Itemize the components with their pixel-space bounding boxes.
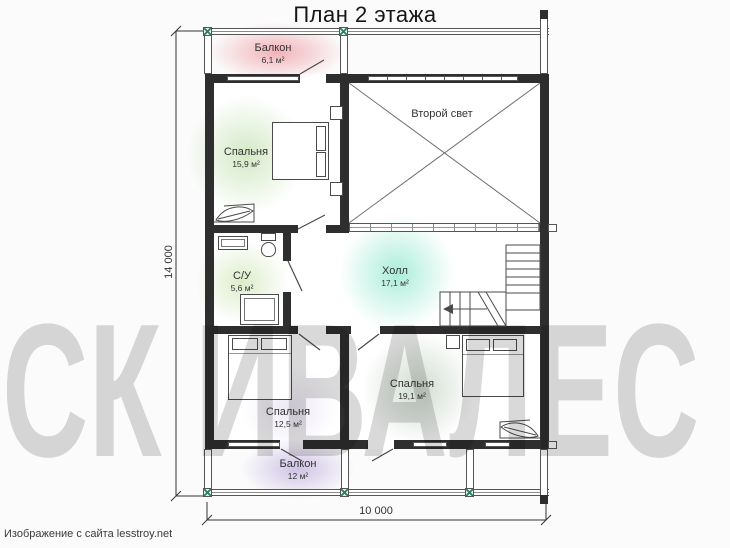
balcony-post xyxy=(341,449,349,489)
bed-fold-line xyxy=(463,354,523,355)
joint-marker xyxy=(203,488,212,497)
room-name: Второй свет xyxy=(410,108,474,121)
sink xyxy=(218,236,248,250)
shower-tray xyxy=(240,294,279,325)
room-area: 6,1 м² xyxy=(233,55,313,65)
pillow xyxy=(261,338,287,350)
window xyxy=(413,442,447,447)
nightstand xyxy=(330,106,343,120)
balcony-post xyxy=(340,35,348,74)
room-area: 12 м² xyxy=(258,471,338,481)
wall-bathroom-right-a xyxy=(283,233,291,261)
window-sill xyxy=(548,441,557,449)
wall-bedrooms-divider xyxy=(340,326,349,449)
pillow xyxy=(232,338,258,350)
wall-hall-bedrooms-a xyxy=(205,326,298,334)
room-name: Спальня xyxy=(370,378,454,391)
room-label-balcony-bottom: Балкон 12 м² xyxy=(258,458,338,481)
joint-marker xyxy=(339,27,348,36)
room-name: Балкон xyxy=(258,458,338,471)
room-name: Спальня xyxy=(248,406,328,419)
wall-hall-bedrooms-c xyxy=(380,326,549,334)
toilet-tank xyxy=(261,233,276,241)
toilet-bowl xyxy=(261,242,276,257)
room-label-bathroom: С/У 5,6 м² xyxy=(212,270,272,293)
balcony-post xyxy=(204,449,212,489)
nightstand xyxy=(446,335,460,349)
door-leaf xyxy=(372,449,393,461)
bed-fold-line xyxy=(229,353,291,354)
joint-marker xyxy=(340,488,349,497)
balcony-post xyxy=(540,449,548,496)
page-title: План 2 этажа xyxy=(0,2,730,28)
joint-marker xyxy=(203,27,212,36)
room-label-bedroom-right: Спальня 19,1 м² xyxy=(370,378,454,401)
dimension-label-horizontal: 10 000 xyxy=(346,505,406,517)
wall-right xyxy=(540,74,549,449)
window xyxy=(227,76,299,81)
room-area: 5,6 м² xyxy=(212,283,272,293)
post-cap xyxy=(540,495,548,504)
room-label-hall: Холл 17,1 м² xyxy=(355,265,435,288)
window-sill xyxy=(548,224,557,232)
wall-bedroom-hall-a xyxy=(205,225,298,233)
attribution-text: Изображение с сайта lesstroy.net xyxy=(4,528,172,540)
floor-plan-page: { "title": "План 2 этажа", "watermark": … xyxy=(0,0,730,548)
window xyxy=(368,76,518,81)
room-label-bedroom-top: Спальня 15,9 м² xyxy=(206,146,286,169)
room-area: 17,1 м² xyxy=(355,278,435,288)
balcony-post xyxy=(466,449,474,489)
pillow xyxy=(493,339,517,351)
room-area: 12,5 м² xyxy=(248,419,328,429)
joint-marker xyxy=(465,488,474,497)
window xyxy=(485,442,510,447)
pillow xyxy=(316,126,326,151)
wall-bedroom-top-right xyxy=(340,74,349,233)
second-light-railing xyxy=(349,223,540,232)
room-label-bedroom-left: Спальня 12,5 м² xyxy=(248,406,328,429)
balcony-rail-top xyxy=(203,28,549,35)
room-name: С/У xyxy=(212,270,272,283)
room-label-balcony-top: Балкон 6,1 м² xyxy=(233,42,313,65)
nightstand xyxy=(330,182,343,196)
pillow xyxy=(466,339,490,351)
balcony-post xyxy=(204,35,212,74)
wall-bottom-b xyxy=(303,440,368,449)
room-name: Спальня xyxy=(206,146,286,159)
window xyxy=(228,442,280,447)
dimension-label-vertical: 14 000 xyxy=(163,227,175,297)
room-name: Холл xyxy=(355,265,435,278)
room-area: 15,9 м² xyxy=(206,159,286,169)
balcony-rail-bottom xyxy=(203,489,549,496)
room-label-second-light: Второй свет xyxy=(410,108,474,121)
room-area: 19,1 м² xyxy=(370,391,454,401)
pillow xyxy=(316,152,326,177)
wall-left xyxy=(205,74,214,449)
room-name: Балкон xyxy=(233,42,313,55)
